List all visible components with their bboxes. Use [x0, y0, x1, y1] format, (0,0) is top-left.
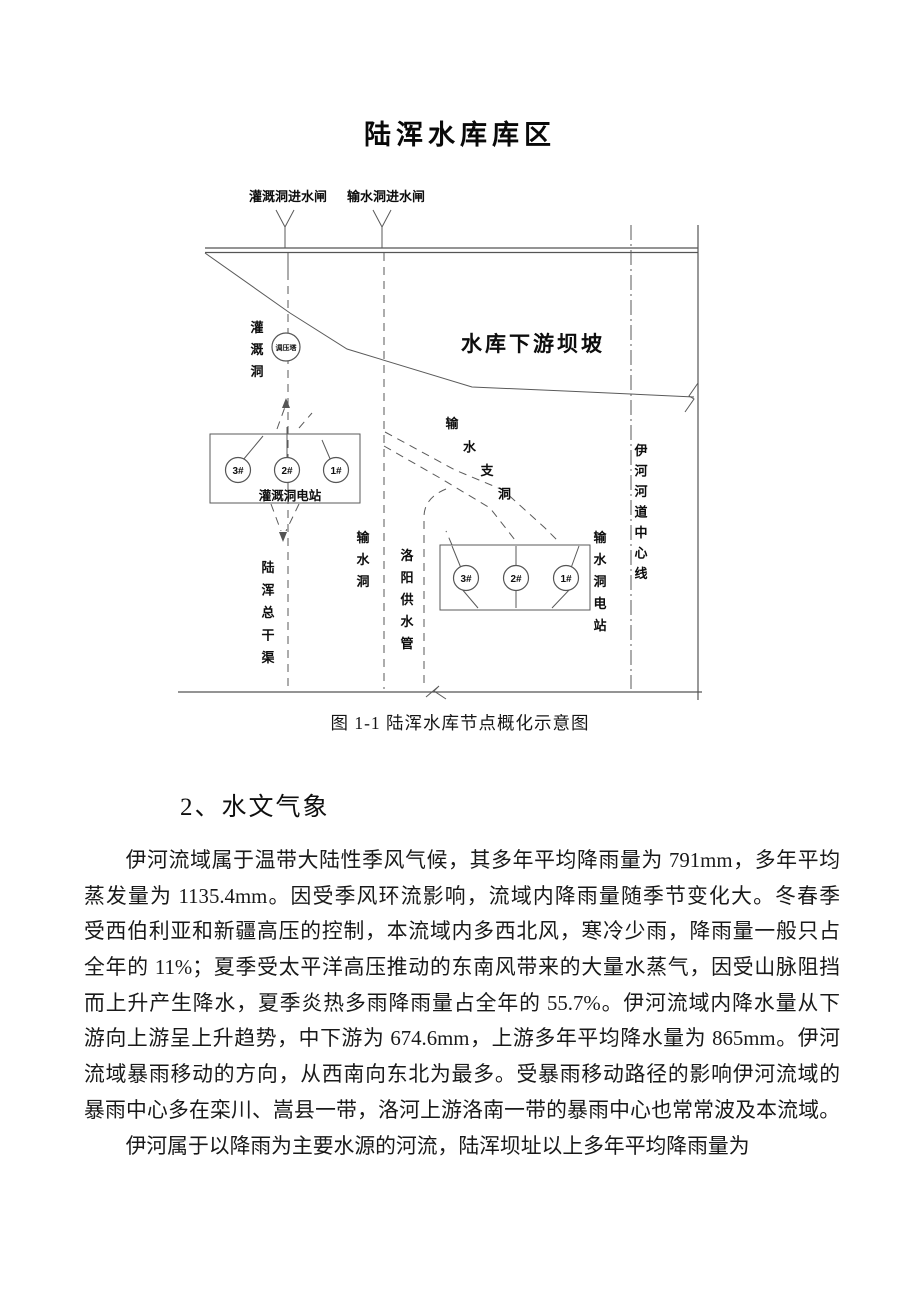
body-line: 伊河流域属于温带大陆性季风气候，其多年平均降雨量为 791mm，多年平均	[84, 843, 840, 879]
flow-arrow-up	[277, 398, 312, 429]
irrigation-station-block: 3# 2# 1# 灌溉洞电站	[210, 427, 360, 503]
conveyance-station-label: 输水洞电站	[593, 530, 607, 633]
section-heading: 2、水文气象	[180, 787, 330, 823]
flow-arrow-down	[271, 504, 299, 542]
figure-caption: 图 1-1 陆浑水库节点概化示意图	[0, 710, 920, 735]
figure-title: 陆浑水库库区	[0, 113, 920, 152]
unit-label: 3#	[232, 466, 244, 477]
surge-tower-label: 调压塔	[276, 343, 298, 352]
unit-label: 1#	[330, 466, 342, 477]
body-text: 伊河流域属于温带大陆性季风气候，其多年平均降雨量为 791mm，多年平均蒸发量为…	[84, 843, 840, 1164]
conveyance-tunnel-label: 输水洞	[356, 530, 370, 589]
irrigation-station-label: 灌溉洞电站	[258, 488, 322, 503]
branch-tunnel-line-2	[384, 446, 515, 540]
body-line: 蒸发量为 1135.4mm。因受季风环流影响，流域内降雨量随季节变化大。冬春季	[84, 879, 840, 915]
gate-symbol-right	[373, 210, 391, 248]
unit-label: 2#	[281, 466, 293, 477]
dam-slope-label: 水库下游坝坡	[461, 332, 605, 356]
unit-label: 1#	[560, 574, 572, 585]
main-canal-label: 陆浑总干渠	[260, 560, 275, 665]
reservoir-diagram: 3# 2# 1# 灌溉洞电站 3# 2# 1# 调压塔 灌溉洞进水闸 输水洞进水…	[170, 175, 730, 710]
unit-label: 2#	[510, 574, 522, 585]
body-line: 游向上游呈上升趋势，中下游为 674.6mm，上游多年平均降水量为 865mm。…	[84, 1021, 840, 1057]
gate-symbol-left	[276, 210, 294, 248]
luoyang-pipe-label: 洛阳供水管	[399, 548, 414, 651]
break-mark-right	[685, 383, 698, 412]
document-page: 陆浑水库库区	[0, 0, 920, 1302]
body-line: 而上升产生降水，夏季炎热多雨降雨量占全年的 55.7%。伊河流域内降水量从下	[84, 986, 840, 1022]
river-centerline-label: 伊河河道中心线	[633, 443, 647, 581]
body-line: 受西伯利亚和新疆高压的控制，本流域内多西北风，寒冷少雨，降雨量一般只占	[84, 914, 840, 950]
gate-right-label: 输水洞进水闸	[347, 189, 425, 204]
branch-tunnel-label: 输水支洞	[445, 416, 511, 502]
gate-left-label: 灌溉洞进水闸	[249, 189, 327, 204]
body-line: 流域暴雨移动的方向，从西南向东北为最多。受暴雨移动路径的影响伊河流域的	[84, 1057, 840, 1093]
unit-label: 3#	[460, 574, 472, 585]
surge-tower-node: 调压塔	[272, 333, 300, 361]
conveyance-station-block: 3# 2# 1#	[440, 531, 590, 610]
irrigation-tunnel-label: 灌溉洞	[250, 320, 263, 379]
dam-crest-line	[205, 248, 698, 253]
body-line: 伊河属于以降雨为主要水源的河流，陆浑坝址以上多年平均降雨量为	[84, 1129, 840, 1165]
dam-slope-line	[205, 253, 694, 397]
body-line: 暴雨中心多在栾川、嵩县一带，洛河上游洛南一带的暴雨中心也常常波及本流域。	[84, 1093, 840, 1129]
luoyang-pipe-line	[424, 489, 446, 689]
body-line: 全年的 11%；夏季受太平洋高压推动的东南风带来的大量水蒸气，因受山脉阻挡	[84, 950, 840, 986]
